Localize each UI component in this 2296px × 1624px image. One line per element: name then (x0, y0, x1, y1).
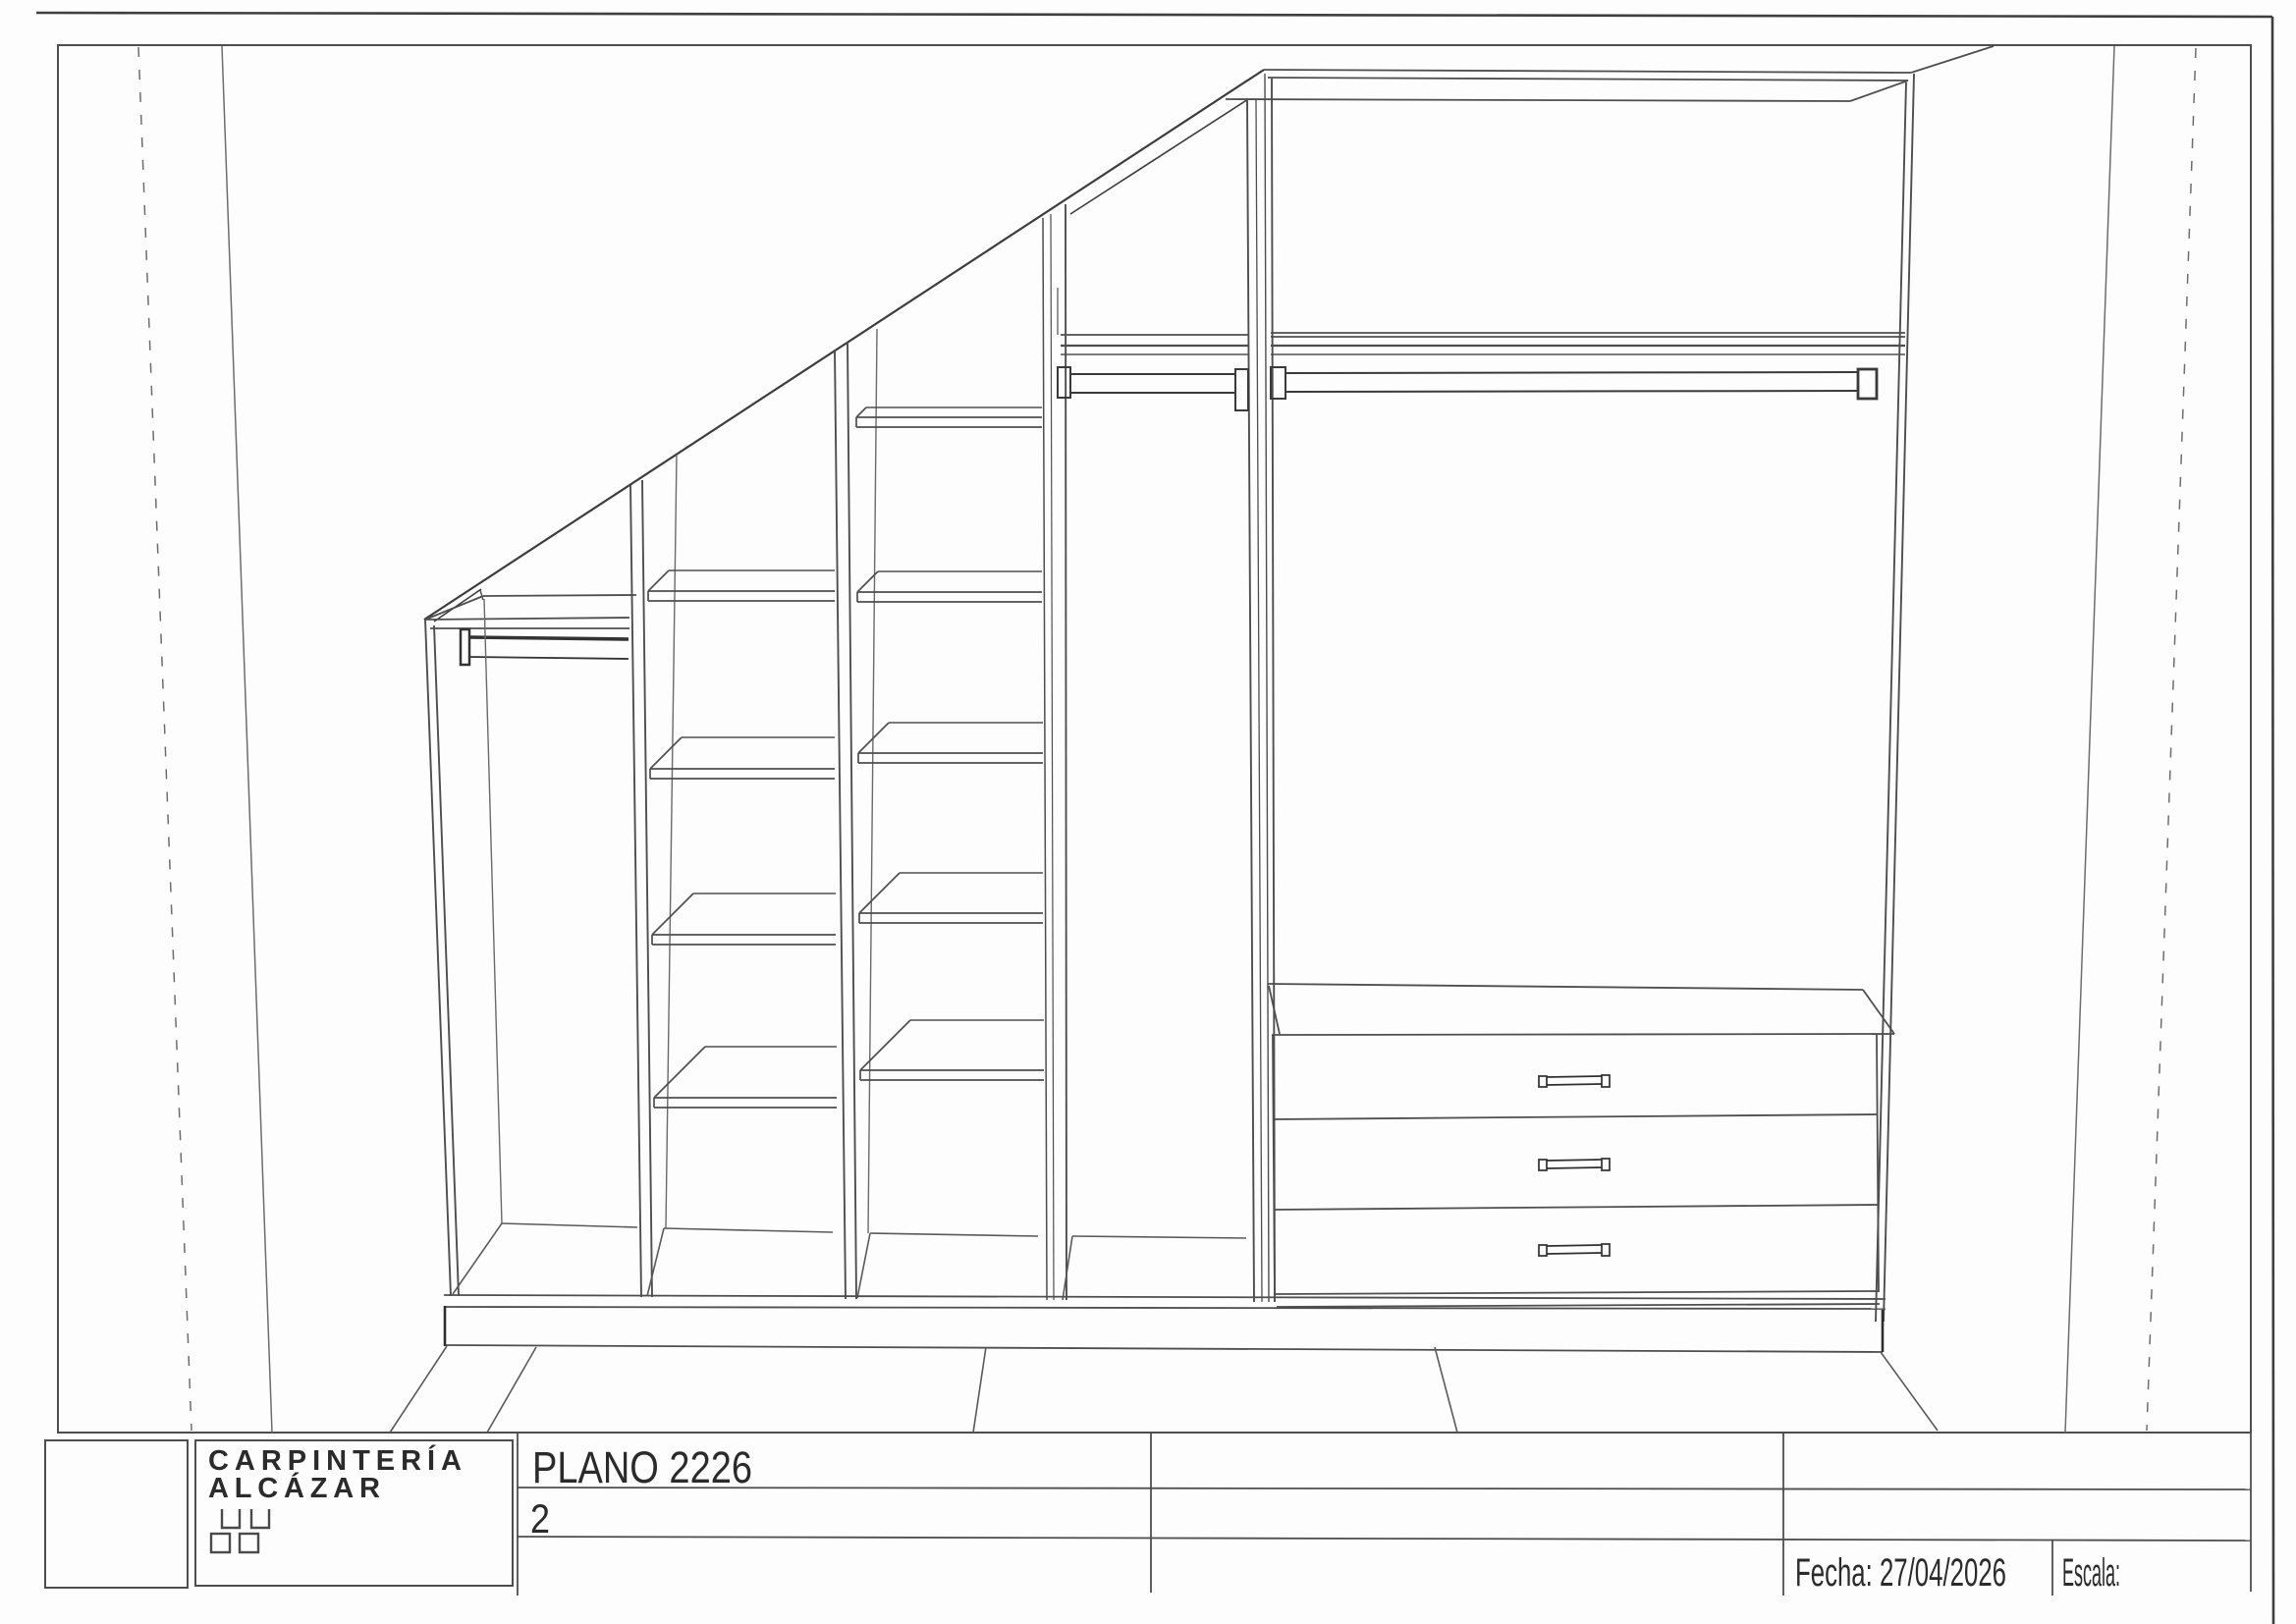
svg-text:2: 2 (530, 1495, 550, 1542)
svg-text:PLANO 2226: PLANO 2226 (532, 1442, 752, 1492)
svg-text:Escala:: Escala: (2062, 1551, 2120, 1595)
svg-text:Fecha: 27/04/2026: Fecha: 27/04/2026 (1795, 1551, 2006, 1595)
svg-text:CARPINTERÍA: CARPINTERÍA (208, 1443, 462, 1477)
